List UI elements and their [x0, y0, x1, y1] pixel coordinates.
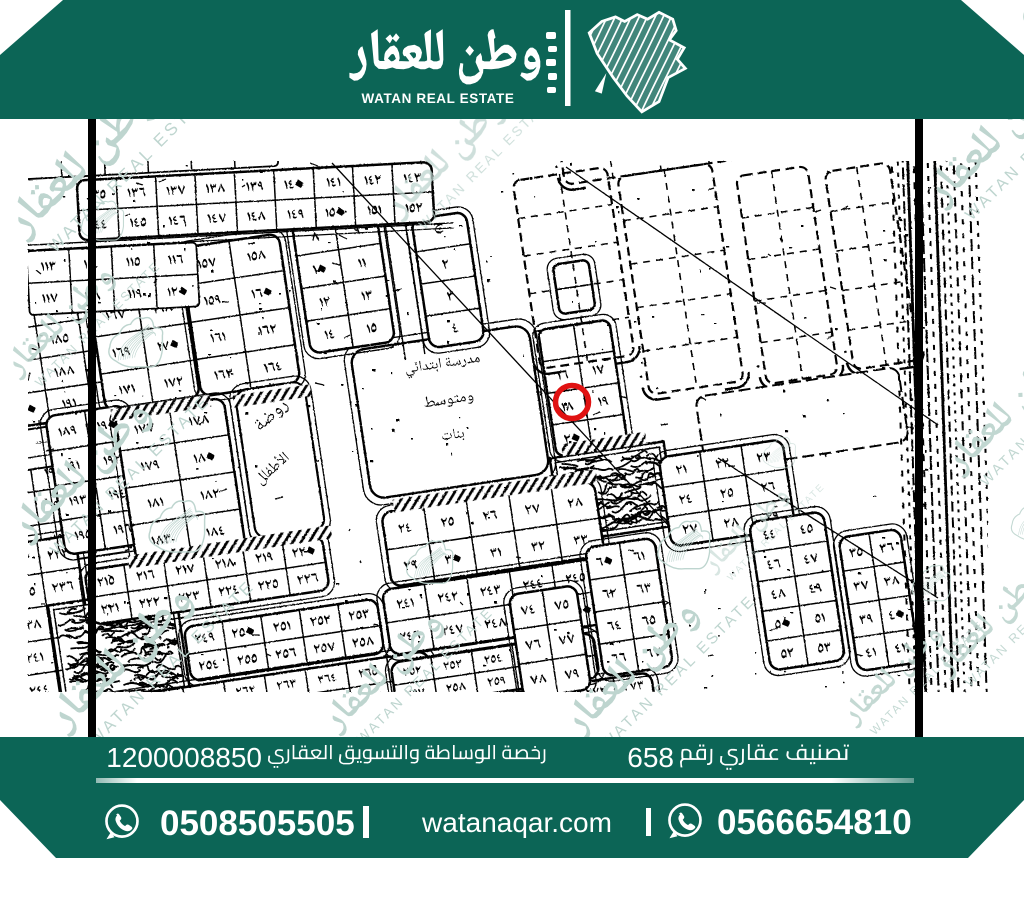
svg-text:WATAN REAL ESTATE: WATAN REAL ESTATE: [362, 91, 515, 106]
svg-text:658: 658: [627, 742, 674, 773]
svg-text:1200008850: 1200008850: [106, 742, 262, 773]
svg-text:watanaqar.com: watanaqar.com: [421, 807, 612, 838]
svg-text:0566654810: 0566654810: [717, 803, 912, 842]
svg-text:0508505505: 0508505505: [160, 804, 355, 843]
